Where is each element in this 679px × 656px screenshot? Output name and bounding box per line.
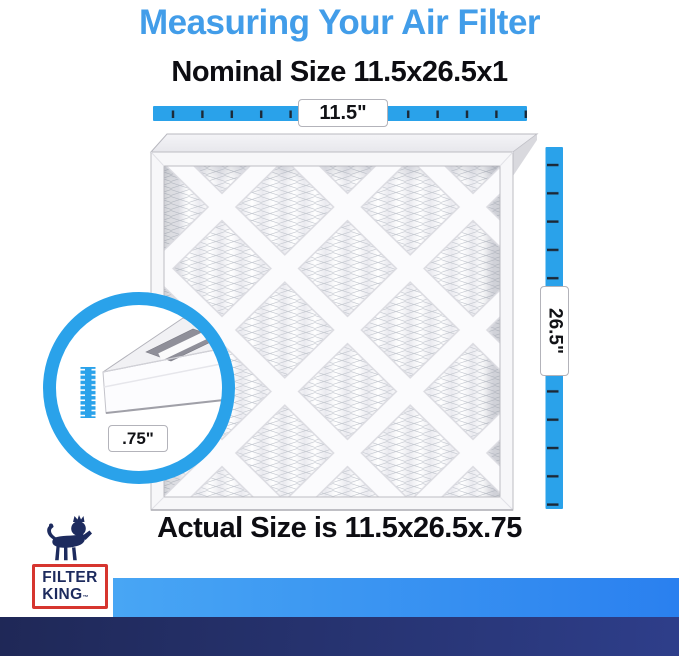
lion-crown-icon (42, 514, 98, 566)
accent-bar-dark (0, 617, 679, 656)
width-label: 11.5" (298, 99, 388, 127)
logo-line2: KING™ (42, 586, 98, 603)
depth-ruler (81, 367, 96, 418)
height-label: 26.5" (540, 286, 569, 376)
infographic-page: Measuring Your Air Filter Nominal Size 1… (0, 0, 679, 656)
filter-king-logo: FILTER KING™ (20, 514, 120, 609)
accent-bar-light (113, 578, 679, 617)
depth-ruler-ticks (81, 369, 96, 417)
logo-box: FILTER KING™ (32, 564, 108, 609)
trademark-mark: ™ (83, 595, 89, 601)
logo-line1: FILTER (42, 569, 98, 586)
filter-top-face (151, 134, 537, 152)
depth-label: .75" (108, 425, 168, 452)
